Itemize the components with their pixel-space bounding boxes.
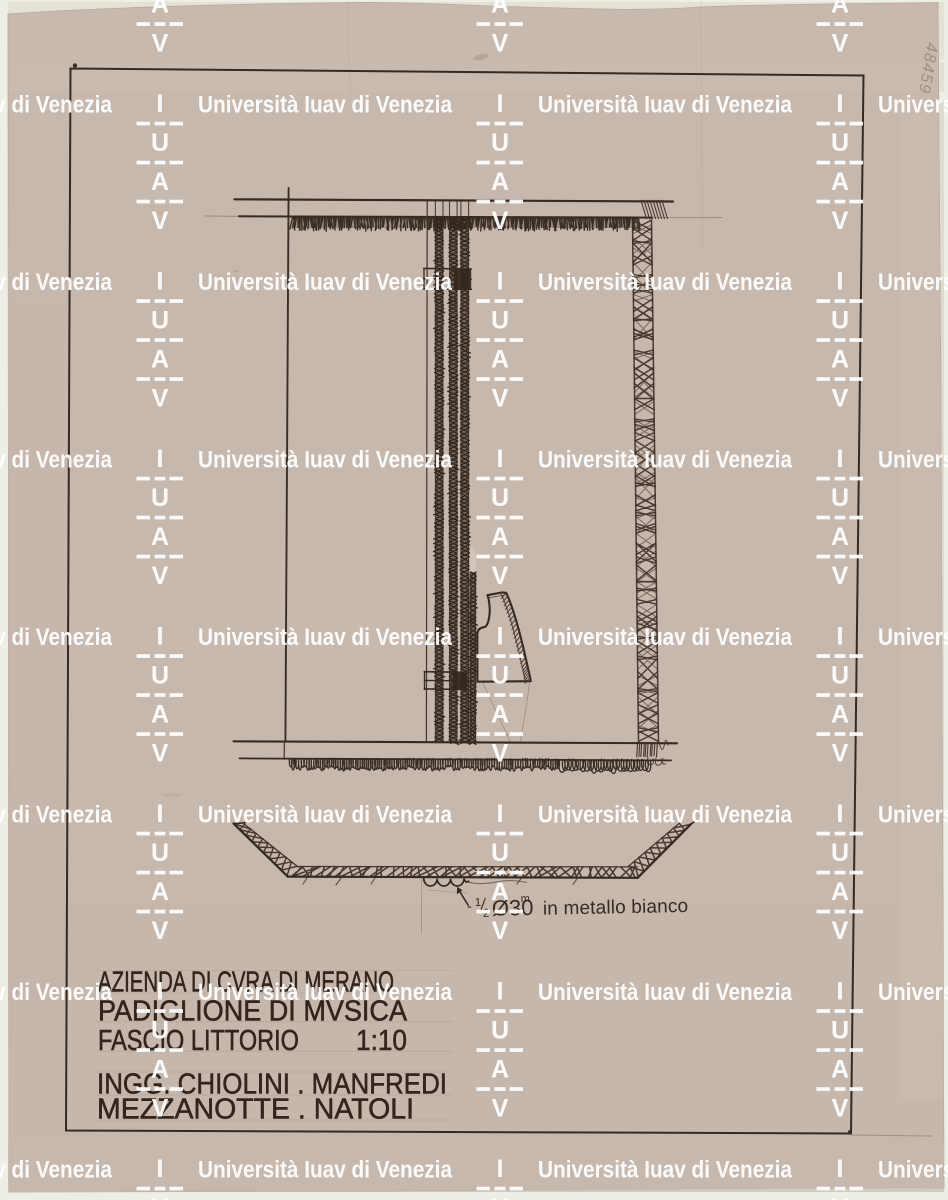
- svg-text:I: I: [497, 90, 504, 118]
- svg-text:A: A: [831, 0, 849, 19]
- svg-text:I: I: [497, 445, 504, 473]
- svg-text:A: A: [151, 1056, 169, 1084]
- svg-text:U: U: [151, 1194, 169, 1200]
- svg-text:I: I: [837, 1155, 844, 1183]
- svg-text:Università Iuav di Venezia: Università Iuav di Venezia: [538, 447, 793, 474]
- svg-text:I: I: [497, 800, 504, 828]
- svg-text:I: I: [157, 1155, 164, 1183]
- svg-text:V: V: [492, 1095, 509, 1123]
- svg-text:Università Iuav di Venezia: Università Iuav di Venezia: [0, 1157, 113, 1184]
- svg-text:A: A: [491, 0, 509, 19]
- svg-text:m: m: [521, 893, 530, 905]
- svg-text:Università Iuav di Venezia: Università Iuav di Venezia: [878, 447, 948, 474]
- svg-text:U: U: [491, 307, 509, 335]
- svg-text:V: V: [152, 385, 169, 413]
- svg-text:I: I: [497, 1155, 504, 1183]
- svg-text:I: I: [157, 90, 164, 118]
- svg-text:U: U: [831, 1017, 849, 1045]
- svg-text:U: U: [151, 1017, 169, 1045]
- svg-text:I: I: [497, 623, 504, 651]
- svg-text:Università Iuav di Venezia: Università Iuav di Venezia: [878, 269, 948, 296]
- svg-text:V: V: [152, 30, 169, 58]
- svg-text:U: U: [151, 484, 169, 512]
- svg-text:U: U: [831, 1194, 849, 1200]
- svg-text:V: V: [492, 385, 509, 413]
- svg-text:U: U: [151, 129, 169, 157]
- svg-text:V: V: [492, 740, 509, 768]
- svg-text:A: A: [491, 878, 509, 906]
- svg-text:U: U: [491, 662, 509, 690]
- svg-text:U: U: [491, 1017, 509, 1045]
- svg-text:A: A: [491, 523, 509, 551]
- svg-text:V: V: [492, 562, 509, 590]
- svg-text:V: V: [832, 30, 849, 58]
- svg-text:A: A: [831, 701, 849, 729]
- svg-text:Università Iuav di Venezia: Università Iuav di Venezia: [878, 92, 948, 119]
- svg-text:I: I: [157, 268, 164, 296]
- svg-text:V: V: [832, 1095, 849, 1123]
- svg-text:2: 2: [483, 908, 490, 920]
- svg-text:A: A: [491, 168, 509, 196]
- svg-text:A: A: [151, 346, 169, 374]
- svg-text:Università Iuav di Venezia: Università Iuav di Venezia: [0, 979, 113, 1006]
- svg-text:I: I: [837, 978, 844, 1006]
- svg-text:I: I: [837, 800, 844, 828]
- svg-text:Università Iuav di Venezia: Università Iuav di Venezia: [198, 269, 453, 296]
- svg-text:Università Iuav di Venezia: Università Iuav di Venezia: [538, 92, 793, 119]
- svg-text:V: V: [152, 740, 169, 768]
- svg-text:A: A: [831, 878, 849, 906]
- svg-text:A: A: [831, 346, 849, 374]
- svg-text:U: U: [831, 839, 849, 867]
- svg-text:I: I: [157, 623, 164, 651]
- svg-text:1:10: 1:10: [356, 1025, 407, 1057]
- svg-text:V: V: [152, 207, 169, 235]
- svg-text:I: I: [837, 268, 844, 296]
- svg-text:A: A: [151, 878, 169, 906]
- svg-text:A: A: [151, 523, 169, 551]
- svg-text:V: V: [832, 207, 849, 235]
- svg-text:I: I: [157, 978, 164, 1006]
- svg-text:MEZZANOTTE . NATOLI: MEZZANOTTE . NATOLI: [97, 1094, 414, 1126]
- svg-text:A: A: [491, 1056, 509, 1084]
- svg-text:A: A: [831, 168, 849, 196]
- svg-text:Università Iuav di Venezia: Università Iuav di Venezia: [0, 624, 113, 651]
- svg-text:Università Iuav di Venezia: Università Iuav di Venezia: [878, 1157, 948, 1184]
- svg-text:U: U: [491, 484, 509, 512]
- svg-text:Università Iuav di Venezia: Università Iuav di Venezia: [878, 802, 948, 829]
- svg-text:A: A: [491, 346, 509, 374]
- svg-text:A: A: [831, 523, 849, 551]
- svg-text:in metallo bianco: in metallo bianco: [543, 896, 689, 920]
- svg-text:V: V: [832, 740, 849, 768]
- svg-text:Università Iuav di Venezia: Università Iuav di Venezia: [198, 1157, 453, 1184]
- svg-text:Università Iuav di Venezia: Università Iuav di Venezia: [0, 447, 113, 474]
- svg-text:V: V: [492, 207, 509, 235]
- svg-text:I: I: [157, 800, 164, 828]
- svg-text:Università Iuav di Venezia: Università Iuav di Venezia: [878, 979, 948, 1006]
- svg-text:1: 1: [475, 897, 482, 909]
- svg-text:I: I: [497, 268, 504, 296]
- svg-text:V: V: [152, 917, 169, 945]
- svg-text:Università Iuav di Venezia: Università Iuav di Venezia: [198, 92, 453, 119]
- svg-text:U: U: [831, 307, 849, 335]
- svg-text:-: -: [467, 898, 472, 915]
- svg-text:U: U: [491, 1194, 509, 1200]
- svg-text:V: V: [832, 562, 849, 590]
- svg-text:Università Iuav di Venezia: Università Iuav di Venezia: [0, 802, 113, 829]
- svg-text:U: U: [831, 129, 849, 157]
- svg-text:V: V: [832, 917, 849, 945]
- svg-text:Università Iuav di Venezia: Università Iuav di Venezia: [198, 447, 453, 474]
- svg-text:A: A: [831, 1056, 849, 1084]
- svg-text:Università Iuav di Venezia: Università Iuav di Venezia: [198, 624, 453, 651]
- svg-text:Università Iuav di Venezia: Università Iuav di Venezia: [198, 979, 453, 1006]
- svg-text:A: A: [491, 701, 509, 729]
- svg-text:Università Iuav di Venezia: Università Iuav di Venezia: [0, 269, 113, 296]
- svg-text:Università Iuav di Venezia: Università Iuav di Venezia: [198, 802, 453, 829]
- svg-text:A: A: [151, 0, 169, 19]
- svg-text:Università Iuav di Venezia: Università Iuav di Venezia: [538, 1157, 793, 1184]
- svg-text:Università Iuav di Venezia: Università Iuav di Venezia: [538, 802, 793, 829]
- svg-text:V: V: [492, 917, 509, 945]
- svg-text:V: V: [152, 1095, 169, 1123]
- svg-text:Università Iuav di Venezia: Università Iuav di Venezia: [538, 624, 793, 651]
- svg-text:Università Iuav di Venezia: Università Iuav di Venezia: [878, 624, 948, 651]
- svg-text:A: A: [151, 701, 169, 729]
- svg-text:I: I: [837, 623, 844, 651]
- svg-text:I: I: [837, 445, 844, 473]
- svg-text:A: A: [151, 168, 169, 196]
- svg-text:V: V: [832, 385, 849, 413]
- svg-text:Università Iuav di Venezia: Università Iuav di Venezia: [538, 979, 793, 1006]
- svg-text:I: I: [497, 978, 504, 1006]
- svg-text:U: U: [151, 839, 169, 867]
- svg-text:FASCIO LITTORIO: FASCIO LITTORIO: [98, 1025, 299, 1057]
- svg-text:U: U: [831, 662, 849, 690]
- svg-text:Università Iuav di Venezia: Università Iuav di Venezia: [538, 269, 793, 296]
- svg-text:I: I: [157, 445, 164, 473]
- svg-text:I: I: [837, 90, 844, 118]
- svg-text:U: U: [151, 662, 169, 690]
- svg-text:V: V: [492, 30, 509, 58]
- svg-text:V: V: [152, 562, 169, 590]
- svg-text:Università Iuav di Venezia: Università Iuav di Venezia: [0, 92, 113, 119]
- svg-text:U: U: [491, 129, 509, 157]
- svg-text:U: U: [151, 307, 169, 335]
- svg-text:U: U: [831, 484, 849, 512]
- svg-text:U: U: [491, 839, 509, 867]
